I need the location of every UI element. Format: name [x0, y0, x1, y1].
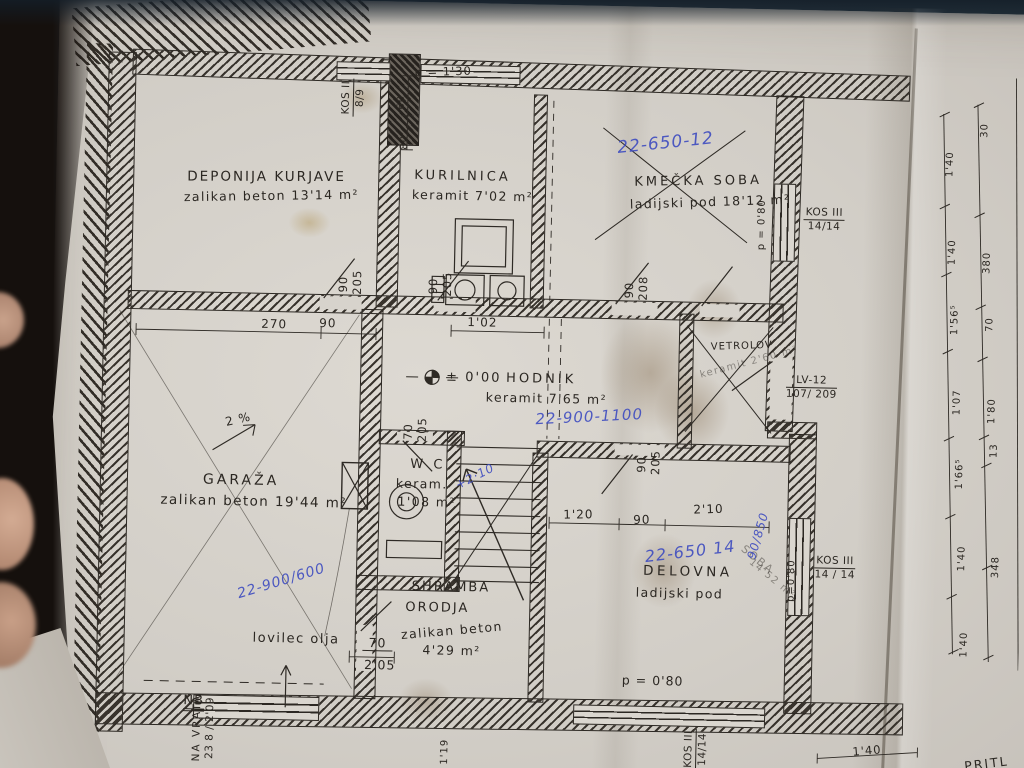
plan-sheet-scene: DEPONIJA KURJAVE zalikan beton 13'14 m² … [0, 0, 1024, 768]
dim-102: 1'02 [467, 315, 497, 330]
chain-inner-6: 1'40 [958, 632, 970, 658]
dim-90-pass: 90 [319, 316, 337, 330]
dim-270: 270 [261, 317, 287, 332]
kos2-size: 8/9 [354, 89, 366, 108]
parapet-p130: p = 1'30 [414, 64, 472, 80]
room-label-shramba: SHRAMBA [412, 579, 491, 596]
room-label-kurilnica: KURILNICA [414, 168, 511, 185]
lv12-size: 107/ 209 [786, 388, 837, 401]
door-dim-deponija-w: 90 [336, 276, 350, 293]
dim-210: 2'10 [693, 502, 724, 517]
door-dim-shramba-h: 2'05 [364, 657, 396, 673]
chain-inner-2: 1'56⁵ [949, 304, 961, 335]
chain-inner-5: 1'40 [956, 546, 968, 572]
dim-140-bottom: 1'40 [852, 742, 882, 758]
window-kos3-bottom [573, 704, 765, 728]
wall-vetrolov-left [677, 313, 695, 448]
door-gap-deponija [320, 296, 362, 310]
kos3b-label: KOS III [814, 554, 856, 569]
room-label-hodnik: HODNIK [506, 371, 576, 387]
lovilec-olja-label: lovilec olja [252, 631, 339, 648]
chain-outer-2: 70 [984, 317, 995, 332]
door-dim-kurilnica-h: 205 [440, 272, 455, 297]
door-gap-kmecka [611, 302, 657, 316]
flue-dim-60: 60 [396, 95, 407, 110]
kos3b-size: 14 / 14 [814, 569, 855, 582]
chain-outer-5: 348 [990, 556, 1001, 578]
chain-outer-0: 30 [979, 123, 990, 138]
window-tag-kos3-upper: KOS III 14/14 [803, 206, 845, 234]
door-dim-kmecka-w: 90 [622, 282, 636, 299]
dim-120: 1'20 [563, 507, 593, 521]
chain-outer-3: 1'80 [986, 398, 998, 424]
door-dim-shramba-w: 70 [362, 635, 392, 652]
window-tag-kos3-lower: KOS III 14 / 14 [814, 554, 856, 582]
window-tag-kos2: KOS II 8/9 [340, 79, 368, 117]
room-sub-kurilnica: keramit 7'02 m² [412, 187, 534, 205]
kos3c-label: KOS III [682, 728, 697, 768]
room-label-garaza: GARAŽA [203, 472, 280, 490]
flue-dim-80: 80 [399, 135, 410, 150]
room-label-wc: W C [410, 457, 445, 473]
door-dim-delovna-w: 90 [634, 456, 648, 473]
dim-119-bottom: 1'19 [439, 739, 451, 765]
room-label-vetrolov: VETROLOV [711, 340, 773, 353]
photo-of-floor-plan: DEPONIJA KURJAVE zalikan beton 13'14 m² … [0, 0, 1024, 768]
room-sub-hodnik: keramit 7'65 m² [486, 389, 608, 407]
door-dim-kmecka-h: 208 [636, 276, 651, 301]
kos3a-size: 14/14 [808, 220, 841, 233]
kos3a-label: KOS III [803, 206, 845, 221]
chain-inner-1: 1'40 [947, 239, 959, 265]
window-tag-kos3-bottom: KOS III 14/14 [682, 728, 710, 768]
door-gap-vetrolov [699, 304, 739, 318]
room-label-delovna: DELOVNA [643, 563, 733, 581]
room-area-wc: 1'08 m² [397, 494, 456, 510]
lv12-label: LV-12 [786, 374, 837, 389]
chain-inner-4: 1'66⁵ [954, 458, 966, 489]
kos2-label: KOS II [340, 79, 355, 117]
room-sub-deponija: zalikan beton 13'14 m² [184, 187, 359, 204]
garage-door-size: 23 8 / 2'09 [203, 697, 216, 759]
dim-90-row: 90 [633, 513, 650, 527]
parapet-p080-right-lower: p=0'80 [785, 559, 797, 602]
room-sub-wc: keram. [396, 476, 448, 492]
room-sub-delovna: ladijski pod [636, 585, 724, 602]
door-dim-kurilnica-w: 90 [426, 278, 440, 295]
chain-inner-0: 1'40 [944, 151, 956, 177]
door-dim-wc-h: 205 [415, 417, 430, 442]
kos3c-size: 14/14 [696, 733, 709, 766]
garage-door-tag: NA VRATA 23 8 / 2'09 [190, 694, 218, 762]
parapet-p080-bottom: p = 0'80 [622, 672, 684, 688]
room-label-orodja: ORODJA [405, 600, 469, 616]
hodnik-level: ± 0'00 [446, 370, 502, 386]
chain-outer-4: 13 [989, 443, 1000, 458]
room-label-deponija: DEPONIJA KURJAVE [187, 169, 346, 186]
room-label-kmecka: KMEČKA SOBA [634, 173, 762, 190]
door-tag-lv12: LV-12 107/ 209 [786, 374, 838, 402]
door-dim-deponija-h: 205 [350, 270, 365, 295]
room-area-shramba: 4'29 m² [422, 642, 481, 658]
chain-inner-3: 1'07 [951, 389, 963, 415]
parapet-p080-right-upper: p = 0'80 [756, 199, 768, 250]
chain-outer-1: 380 [981, 252, 992, 274]
door-dim-delovna-h: 205 [648, 450, 663, 475]
door-dim-wc-w: 70 [401, 423, 415, 440]
door-gap-kurilnica [434, 298, 476, 312]
